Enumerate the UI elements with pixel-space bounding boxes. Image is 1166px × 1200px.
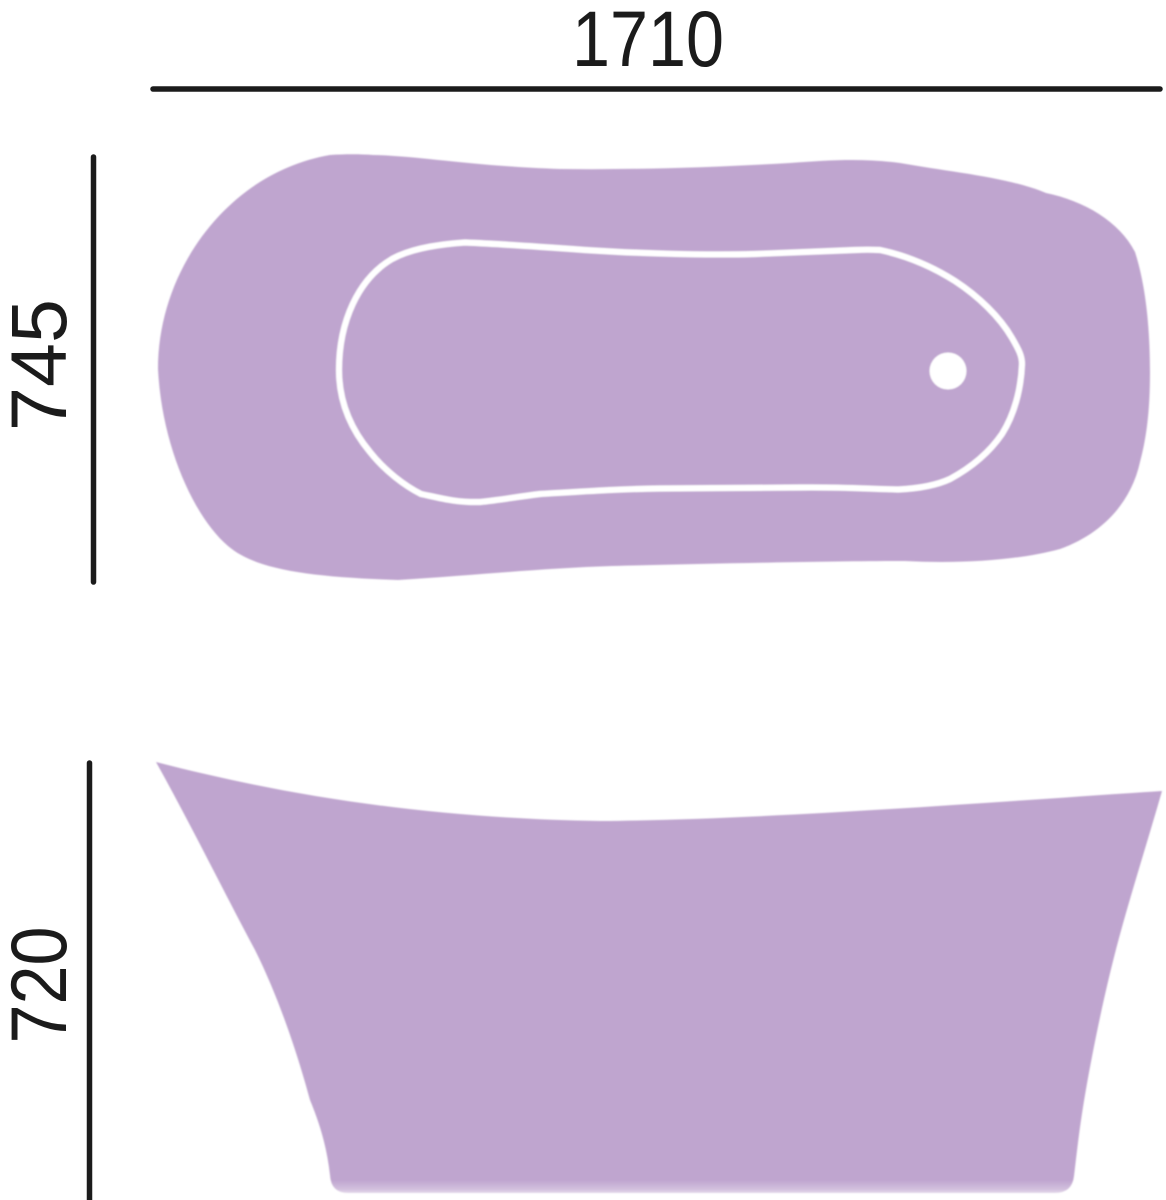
svg-text:1710: 1710 <box>572 0 724 83</box>
svg-text:745: 745 <box>0 299 83 431</box>
svg-text:720: 720 <box>0 927 83 1044</box>
